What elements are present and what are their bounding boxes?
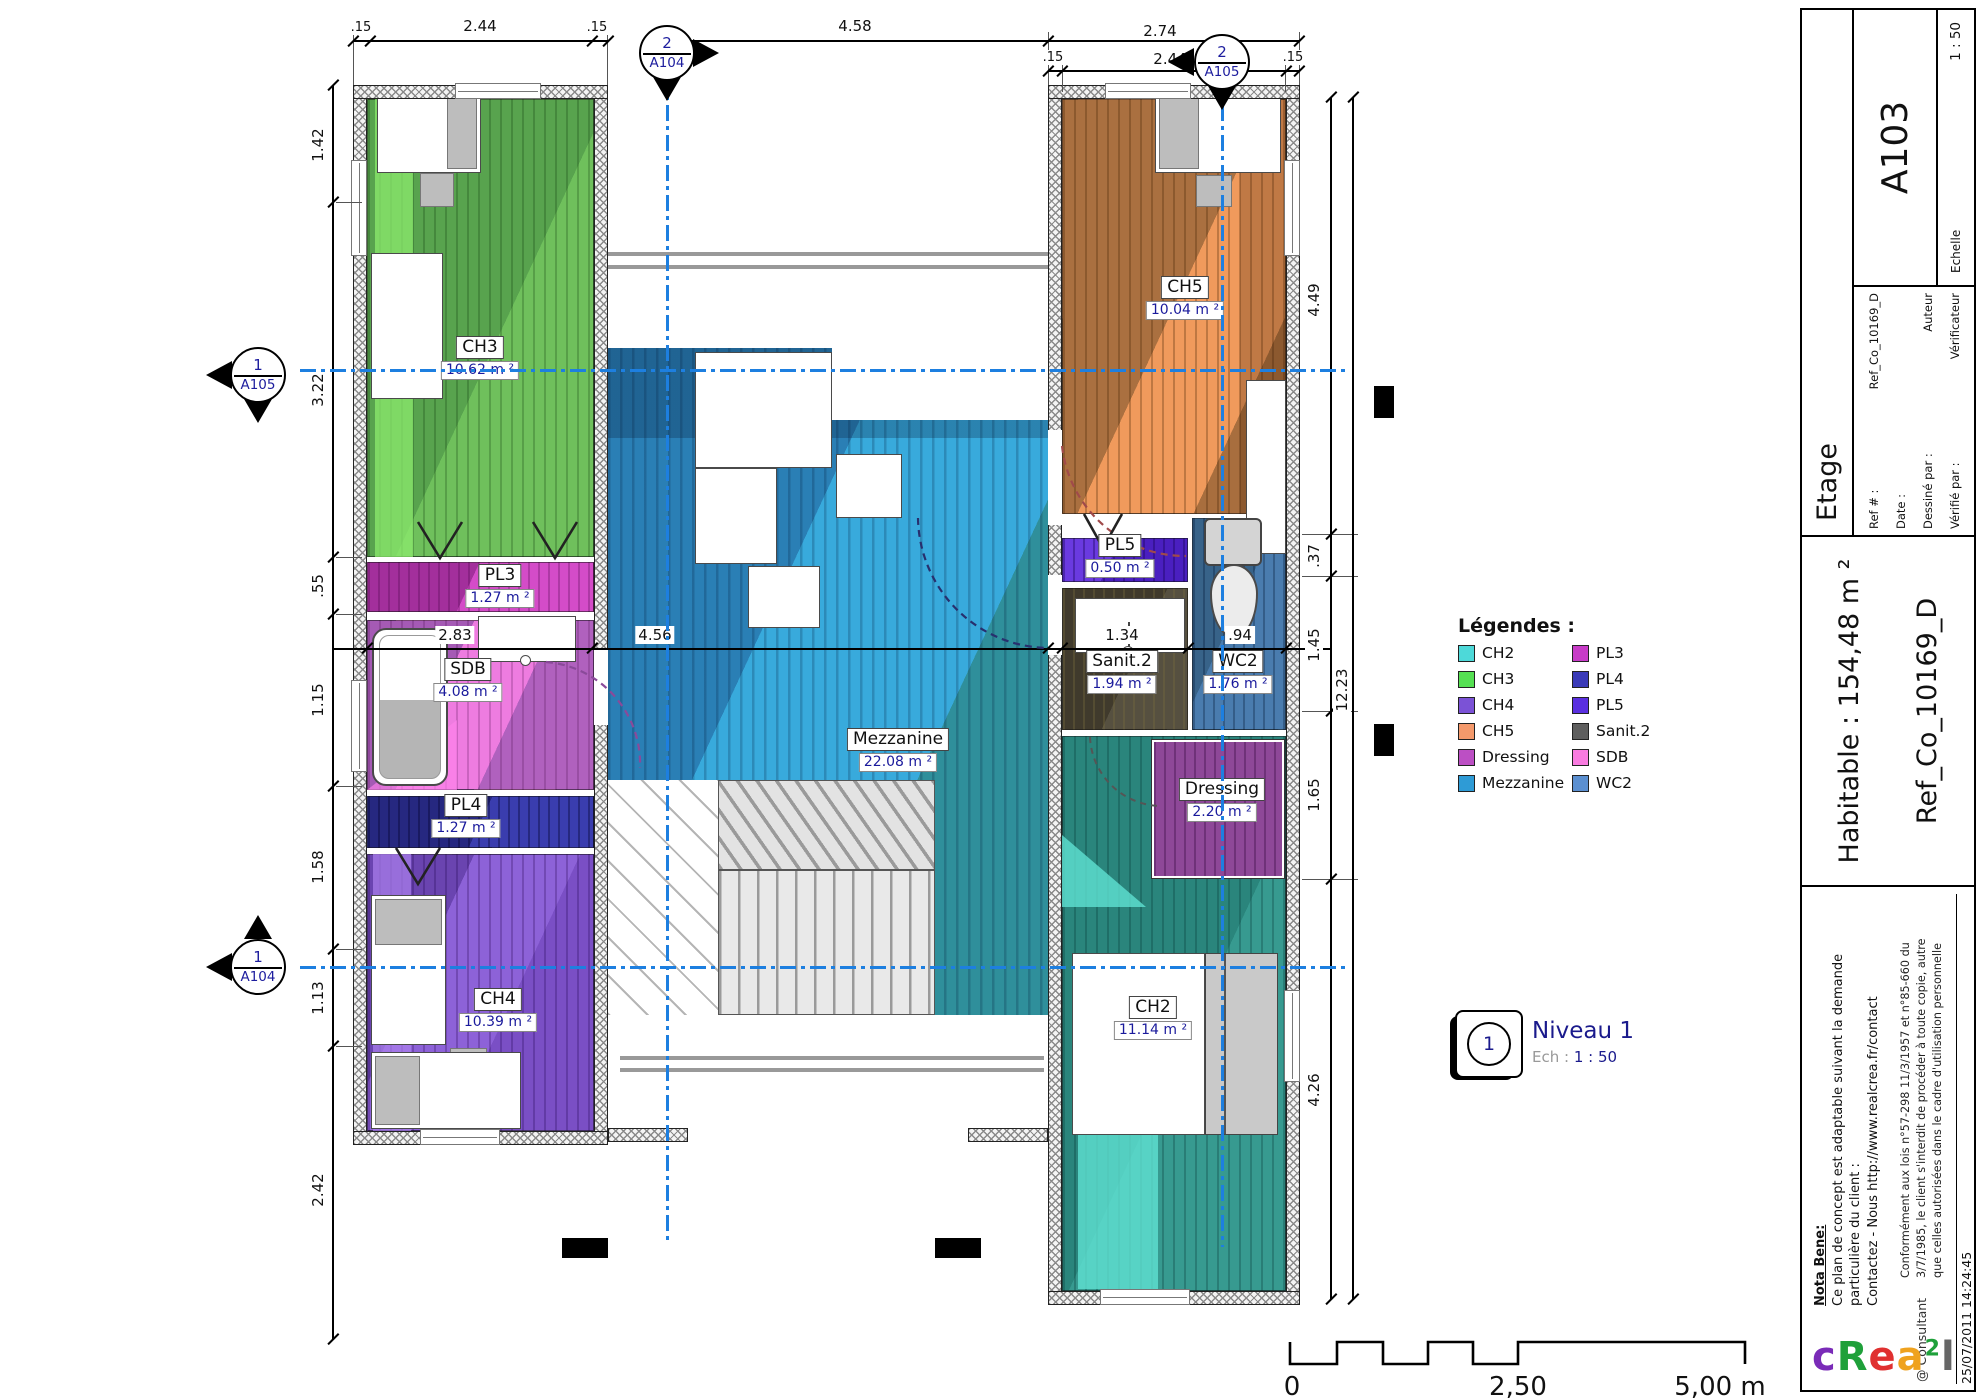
logo-letter: a bbox=[1897, 1334, 1925, 1380]
room-area: 11.14 m ² bbox=[1114, 1021, 1192, 1040]
habitable-area-text: Habitable : 154,48 m ² bbox=[1834, 559, 1865, 864]
scale-row: Echelle 1 : 50 bbox=[1938, 10, 1974, 285]
window-ch3-north bbox=[455, 83, 541, 99]
legend-title: Légendes : bbox=[1458, 615, 1575, 637]
legal-line: Conformément aux lois n°57-298 11/3/1957… bbox=[1898, 939, 1914, 1278]
dim-extension bbox=[336, 557, 362, 558]
legend-item: CH5 bbox=[1458, 722, 1514, 740]
axis-line-vertical-1 bbox=[666, 75, 669, 1240]
title-block-metadata: Ref # : Ref_Co_10169_D Date : Dessiné pa… bbox=[1854, 287, 1974, 535]
level-title: Niveau 1 bbox=[1532, 1018, 1634, 1044]
room-label-sdb: SDB 4.08 m ² bbox=[433, 658, 502, 702]
metadata-row-date: Date : bbox=[1894, 293, 1908, 529]
room-area: 10.39 m ² bbox=[459, 1013, 537, 1032]
pillow-ch5 bbox=[1159, 97, 1199, 169]
legal-line: que celles autorisées dans le cadre d'ut… bbox=[1930, 939, 1946, 1278]
checked-value: Vérificateur bbox=[1948, 293, 1962, 359]
wall-stub-south-left bbox=[608, 1128, 688, 1142]
legal-text: Conformément aux lois n°57-298 11/3/1957… bbox=[1898, 939, 1946, 1278]
legend-label: SDB bbox=[1596, 748, 1628, 766]
project-ref-text: Ref_Co_10169_D bbox=[1912, 598, 1943, 824]
dim-line-mid-horizontal bbox=[332, 648, 1330, 650]
dim-label: 12.23 bbox=[1333, 666, 1351, 715]
room-label-wc2: WC2 1.76 m ² bbox=[1203, 650, 1272, 694]
section-marker-number: 1 bbox=[253, 949, 263, 965]
section-marker-1-a104: 1 A104 bbox=[230, 939, 286, 995]
room-name: PL3 bbox=[479, 564, 522, 587]
axis-line-horizontal-1 bbox=[300, 369, 1350, 372]
bed-ch2 bbox=[1072, 953, 1205, 1135]
window-ch3-west bbox=[351, 160, 367, 256]
dim-line-right-chain bbox=[1330, 97, 1332, 1300]
wall-stub-south-right bbox=[968, 1128, 1048, 1142]
scale-label: Echelle bbox=[1949, 230, 1963, 273]
door-opening-ch5 bbox=[1048, 430, 1062, 525]
stairs-upper-flight bbox=[718, 780, 935, 870]
door-opening-sdb bbox=[594, 650, 608, 725]
legend-label: CH2 bbox=[1482, 644, 1514, 662]
title-block-rotated-frame: Nota Bene: Ce plan de concept est adapta… bbox=[1802, 10, 1974, 1390]
understair-void bbox=[608, 780, 718, 1015]
dim-line-left-chain bbox=[332, 85, 334, 1340]
section-end-bar bbox=[562, 1238, 608, 1258]
dim-extension bbox=[336, 202, 362, 203]
legend-item: CH3 bbox=[1458, 670, 1514, 688]
logo-letter: R bbox=[1837, 1334, 1869, 1380]
room-name: PL5 bbox=[1099, 534, 1142, 557]
dim-label: 1.15 bbox=[309, 680, 327, 719]
dim-label: 2.74 bbox=[1140, 22, 1179, 40]
room-label-pl3: PL3 1.27 m ² bbox=[465, 564, 534, 608]
dim-label: 4.26 bbox=[1305, 1070, 1323, 1109]
nota-bene-line: Ce plan de concept est adaptable suivant… bbox=[1830, 954, 1848, 1306]
logo-letter: c bbox=[1812, 1334, 1837, 1380]
section-marker-number: 2 bbox=[662, 35, 672, 51]
scalebar-label-mid: 2,50 bbox=[1489, 1372, 1547, 1400]
legend-label: CH3 bbox=[1482, 670, 1514, 688]
coffee-table-mezzanine bbox=[748, 566, 820, 628]
wall-right-wing-east bbox=[1286, 85, 1300, 1305]
legend-label: PL5 bbox=[1596, 696, 1624, 714]
nota-bene-line: Contactez - Nous http://www.realcrea.fr/… bbox=[1865, 954, 1883, 1306]
date-label: Date : bbox=[1894, 494, 1908, 529]
roof-edge-line bbox=[608, 252, 1048, 256]
scale-value: 1 : 50 bbox=[1948, 22, 1964, 61]
section-arrow-icon bbox=[206, 953, 232, 981]
title-block-area-section: Habitable : 154,48 m ² Ref_Co_10169_D bbox=[1802, 535, 1974, 885]
title-block-grid: Ref # : Ref_Co_10169_D Date : Dessiné pa… bbox=[1854, 10, 1974, 535]
landing-edge-line bbox=[620, 1056, 1044, 1060]
room-label-ch5: CH5 10.04 m ² bbox=[1146, 276, 1224, 320]
dim-label: .15 bbox=[584, 20, 611, 35]
section-arrow-icon bbox=[244, 915, 272, 939]
scalebar-label-end: 5,00 m bbox=[1674, 1372, 1765, 1400]
room-label-ch2: CH2 11.14 m ² bbox=[1114, 996, 1192, 1040]
sheet-number: A103 bbox=[1854, 10, 1938, 285]
legend-swatch bbox=[1458, 671, 1475, 688]
faucet-sdb bbox=[520, 655, 531, 666]
room-name: CH2 bbox=[1129, 996, 1176, 1019]
window-ch5-north bbox=[1105, 83, 1191, 99]
pillow-ch4 bbox=[375, 899, 442, 945]
section-marker-sheet: A104 bbox=[240, 970, 275, 985]
roof-edge-line bbox=[608, 265, 1048, 269]
title-block-sheet-number-cell: A103 Echelle 1 : 50 bbox=[1854, 10, 1974, 287]
legend-item: CH2 bbox=[1458, 644, 1514, 662]
legend-label: Mezzanine bbox=[1482, 774, 1564, 792]
room-area: 0.50 m ² bbox=[1085, 559, 1154, 578]
room-name: Mezzanine bbox=[847, 728, 949, 751]
legend-label: CH5 bbox=[1482, 722, 1514, 740]
level-badge-number: 1 bbox=[1467, 1022, 1511, 1066]
metadata-row-drawn: Dessiné par : Auteur bbox=[1921, 293, 1935, 529]
room-name: CH5 bbox=[1161, 276, 1208, 299]
nota-bene-text: Nota Bene: Ce plan de concept est adapta… bbox=[1812, 954, 1882, 1306]
legend-swatch bbox=[1458, 723, 1475, 740]
room-label-pl5: PL5 0.50 m ² bbox=[1085, 534, 1154, 578]
dim-extension bbox=[336, 949, 362, 950]
axis-line-horizontal-2 bbox=[300, 966, 1350, 969]
level-scale: Ech : 1 : 50 bbox=[1532, 1048, 1617, 1066]
room-label-ch3: CH3 10.62 m ² bbox=[441, 336, 519, 380]
dim-label: 4.56 bbox=[635, 626, 674, 644]
legend-swatch bbox=[1572, 723, 1589, 740]
section-arrow-icon bbox=[1168, 48, 1194, 76]
drawn-label: Dessiné par : bbox=[1921, 453, 1935, 529]
axis-line-vertical-2 bbox=[1221, 75, 1224, 1247]
legend-label: WC2 bbox=[1596, 774, 1632, 792]
legend-item: Dressing bbox=[1458, 748, 1550, 766]
title-block-header-section: Etage Ref # : Ref_Co_10169_D Date : Dess… bbox=[1802, 10, 1974, 535]
dim-extension bbox=[1285, 62, 1286, 92]
scale-bar bbox=[1290, 1342, 1745, 1364]
logo-superscript: 2 bbox=[1925, 1337, 1941, 1362]
dim-extension bbox=[336, 1046, 362, 1047]
dim-label: 2.42 bbox=[309, 1170, 327, 1209]
section-marker-sheet: A105 bbox=[1204, 65, 1239, 80]
bathtub-inner bbox=[379, 635, 441, 779]
section-arrow-icon bbox=[693, 39, 719, 67]
dim-label: 4.49 bbox=[1305, 280, 1323, 319]
toilet-tank-wc2 bbox=[1204, 518, 1262, 566]
section-marker-number: 2 bbox=[1217, 44, 1227, 60]
room-name: PL4 bbox=[445, 794, 488, 817]
level-badge: 1 bbox=[1455, 1010, 1523, 1078]
room-area: 10.04 m ² bbox=[1146, 301, 1224, 320]
room-name: CH4 bbox=[474, 988, 521, 1011]
nota-bene-title: Nota Bene: bbox=[1812, 954, 1830, 1306]
scalebar-label-0: 0 bbox=[1284, 1372, 1301, 1400]
legend-item: WC2 bbox=[1572, 774, 1632, 792]
nota-bene-line: particulière du client : bbox=[1847, 954, 1865, 1306]
sofa-mezzanine-small bbox=[695, 468, 777, 564]
section-marker-sheet: A105 bbox=[240, 378, 275, 393]
room-name: WC2 bbox=[1212, 650, 1264, 673]
dim-extension bbox=[336, 614, 362, 615]
title-block-nota-section: Nota Bene: Ce plan de concept est adapta… bbox=[1802, 885, 1974, 1390]
section-end-bar bbox=[1374, 724, 1394, 756]
legend-swatch bbox=[1572, 749, 1589, 766]
dim-label: 2.44 bbox=[460, 17, 499, 35]
bed-ch3-left bbox=[371, 253, 443, 399]
room-area: 1.94 m ² bbox=[1087, 675, 1156, 694]
room-area: 4.08 m ² bbox=[433, 683, 502, 702]
pillow-ch3-top bbox=[447, 97, 477, 169]
legal-line: 3/7/1985, le client s'interdit de procéd… bbox=[1914, 939, 1930, 1278]
legend-swatch bbox=[1458, 697, 1475, 714]
window-ch2-east bbox=[1284, 990, 1300, 1082]
legend-item: SDB bbox=[1572, 748, 1628, 766]
dim-line-top-mid bbox=[690, 40, 1048, 42]
window-ch2-south bbox=[1100, 1289, 1190, 1305]
window-sdb-west bbox=[351, 680, 367, 772]
nightstand-ch3 bbox=[420, 173, 454, 207]
room-area: 22.08 m ² bbox=[859, 753, 937, 772]
legend-label: PL3 bbox=[1596, 644, 1624, 662]
checked-label: Vérifié par : bbox=[1948, 462, 1962, 529]
section-arrow-icon bbox=[206, 361, 232, 389]
legend-item: CH4 bbox=[1458, 696, 1514, 714]
wardrobe-ch2-door-line bbox=[1224, 954, 1226, 1134]
legend-item: Mezzanine bbox=[1458, 774, 1564, 792]
legend-swatch bbox=[1458, 645, 1475, 662]
section-marker-2-a105: 2 A105 bbox=[1194, 34, 1250, 90]
wall-right-wing-west bbox=[1048, 85, 1062, 1305]
dim-label: .94 bbox=[1225, 626, 1255, 644]
print-timestamp: 25/07/2011 14:24:45 bbox=[1956, 894, 1974, 1384]
dim-label: 1.58 bbox=[309, 847, 327, 886]
title-block: Nota Bene: Ce plan de concept est adapta… bbox=[1800, 8, 1976, 1392]
room-name: Sanit.2 bbox=[1086, 650, 1158, 673]
dim-label: 1.42 bbox=[309, 125, 327, 164]
dim-line-right-total bbox=[1352, 97, 1354, 1300]
room-label-ch4: CH4 10.39 m ² bbox=[459, 988, 537, 1032]
legend-item: PL5 bbox=[1572, 696, 1624, 714]
crea2l-logo: cRea2l bbox=[1812, 1334, 1956, 1380]
dim-line-top-right-outer bbox=[1048, 40, 1300, 42]
section-marker-1-a105: 1 A105 bbox=[230, 347, 286, 403]
dim-extension bbox=[1062, 62, 1063, 92]
ref-value: Ref_Co_10169_D bbox=[1867, 293, 1881, 389]
dim-label: 1.45 bbox=[1305, 625, 1323, 664]
legend-swatch bbox=[1458, 749, 1475, 766]
dim-label: .15 bbox=[1040, 50, 1067, 65]
bathtub-sdb bbox=[372, 628, 448, 786]
legend-label: CH4 bbox=[1482, 696, 1514, 714]
room-area: 1.27 m ² bbox=[431, 819, 500, 838]
legend-label: PL4 bbox=[1596, 670, 1624, 688]
legend-swatch bbox=[1572, 645, 1589, 662]
section-marker-2-a104: 2 A104 bbox=[639, 25, 695, 81]
legend-swatch bbox=[1572, 671, 1589, 688]
room-label-pl4: PL4 1.27 m ² bbox=[431, 794, 500, 838]
section-marker-number: 1 bbox=[253, 357, 263, 373]
metadata-row-ref: Ref # : Ref_Co_10169_D bbox=[1867, 293, 1881, 529]
room-label-mezzanine: Mezzanine 22.08 m ² bbox=[847, 728, 949, 772]
legend-label: Sanit.2 bbox=[1596, 722, 1650, 740]
logo-letter: e bbox=[1869, 1334, 1897, 1380]
logo-letter: l bbox=[1941, 1334, 1956, 1380]
section-end-bar bbox=[935, 1238, 981, 1258]
window-ch5-east bbox=[1284, 160, 1300, 256]
sheet-section-title: Etage bbox=[1802, 10, 1854, 535]
level-scale-label: Ech : bbox=[1532, 1048, 1569, 1066]
wall-left-wing-east bbox=[594, 85, 608, 1145]
window-ch4-south bbox=[420, 1129, 500, 1145]
ref-label: Ref # : bbox=[1867, 490, 1881, 529]
dim-label: .37 bbox=[1305, 541, 1323, 571]
dim-label: 4.58 bbox=[835, 17, 874, 35]
section-marker-sheet: A104 bbox=[649, 56, 684, 71]
landing-edge-line bbox=[620, 1068, 1044, 1072]
pillow-ch4-bottom bbox=[375, 1056, 420, 1125]
drawn-value: Auteur bbox=[1921, 293, 1935, 332]
level-scale-value: 1 : 50 bbox=[1574, 1048, 1617, 1066]
dim-extension bbox=[336, 786, 362, 787]
room-name: CH3 bbox=[456, 336, 503, 359]
dim-label: 1.34 bbox=[1102, 626, 1141, 644]
legend-item: PL3 bbox=[1572, 644, 1624, 662]
room-area: 1.27 m ² bbox=[465, 589, 534, 608]
metadata-row-checked: Vérifié par : Vérificateur bbox=[1948, 293, 1962, 529]
dim-label: 3.22 bbox=[309, 370, 327, 409]
legend-swatch bbox=[1572, 775, 1589, 792]
dim-label: 1.65 bbox=[1305, 775, 1323, 814]
legend-swatch bbox=[1572, 697, 1589, 714]
room-area: 1.76 m ² bbox=[1203, 675, 1272, 694]
wardrobe-ch2 bbox=[1205, 953, 1278, 1135]
side-table-mezzanine bbox=[836, 454, 902, 518]
room-label-sanit2: Sanit.2 1.94 m ² bbox=[1086, 650, 1158, 694]
dim-label: 2.83 bbox=[435, 626, 474, 644]
stairs-lower-flight bbox=[718, 870, 935, 1015]
dim-label: 1.13 bbox=[309, 978, 327, 1017]
nightstand-ch5 bbox=[1196, 175, 1232, 207]
floor-plan-sheet: .15 2.44 .15 4.58 2.74 .15 2.44 .15 1.42… bbox=[0, 0, 1980, 1400]
room-name: SDB bbox=[444, 658, 492, 681]
dim-label: .15 bbox=[348, 20, 375, 35]
room-ch2-highlight-band bbox=[1078, 1135, 1158, 1289]
legend-swatch bbox=[1458, 775, 1475, 792]
dim-label: .15 bbox=[1280, 50, 1307, 65]
legend-item: Sanit.2 bbox=[1572, 722, 1650, 740]
legend-label: Dressing bbox=[1482, 748, 1550, 766]
section-end-bar bbox=[1374, 386, 1394, 418]
dim-line-top-left-wing bbox=[353, 40, 608, 42]
legend-item: PL4 bbox=[1572, 670, 1624, 688]
dim-label: .55 bbox=[309, 571, 327, 601]
